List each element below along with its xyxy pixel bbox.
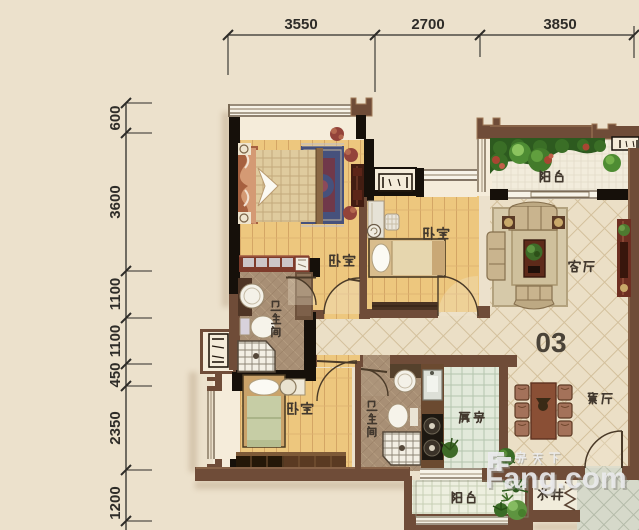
svg-text:1100: 1100 xyxy=(107,325,124,358)
svg-text:3600: 3600 xyxy=(107,185,124,218)
svg-text:450: 450 xyxy=(107,362,124,387)
svg-text:3550: 3550 xyxy=(284,16,317,33)
svg-text:1200: 1200 xyxy=(107,486,124,519)
svg-text:600: 600 xyxy=(107,105,124,130)
svg-text:2350: 2350 xyxy=(107,411,124,444)
svg-text:03: 03 xyxy=(535,327,566,358)
svg-text:2700: 2700 xyxy=(411,16,444,33)
svg-text:1100: 1100 xyxy=(107,278,124,311)
svg-text:3850: 3850 xyxy=(543,16,576,33)
